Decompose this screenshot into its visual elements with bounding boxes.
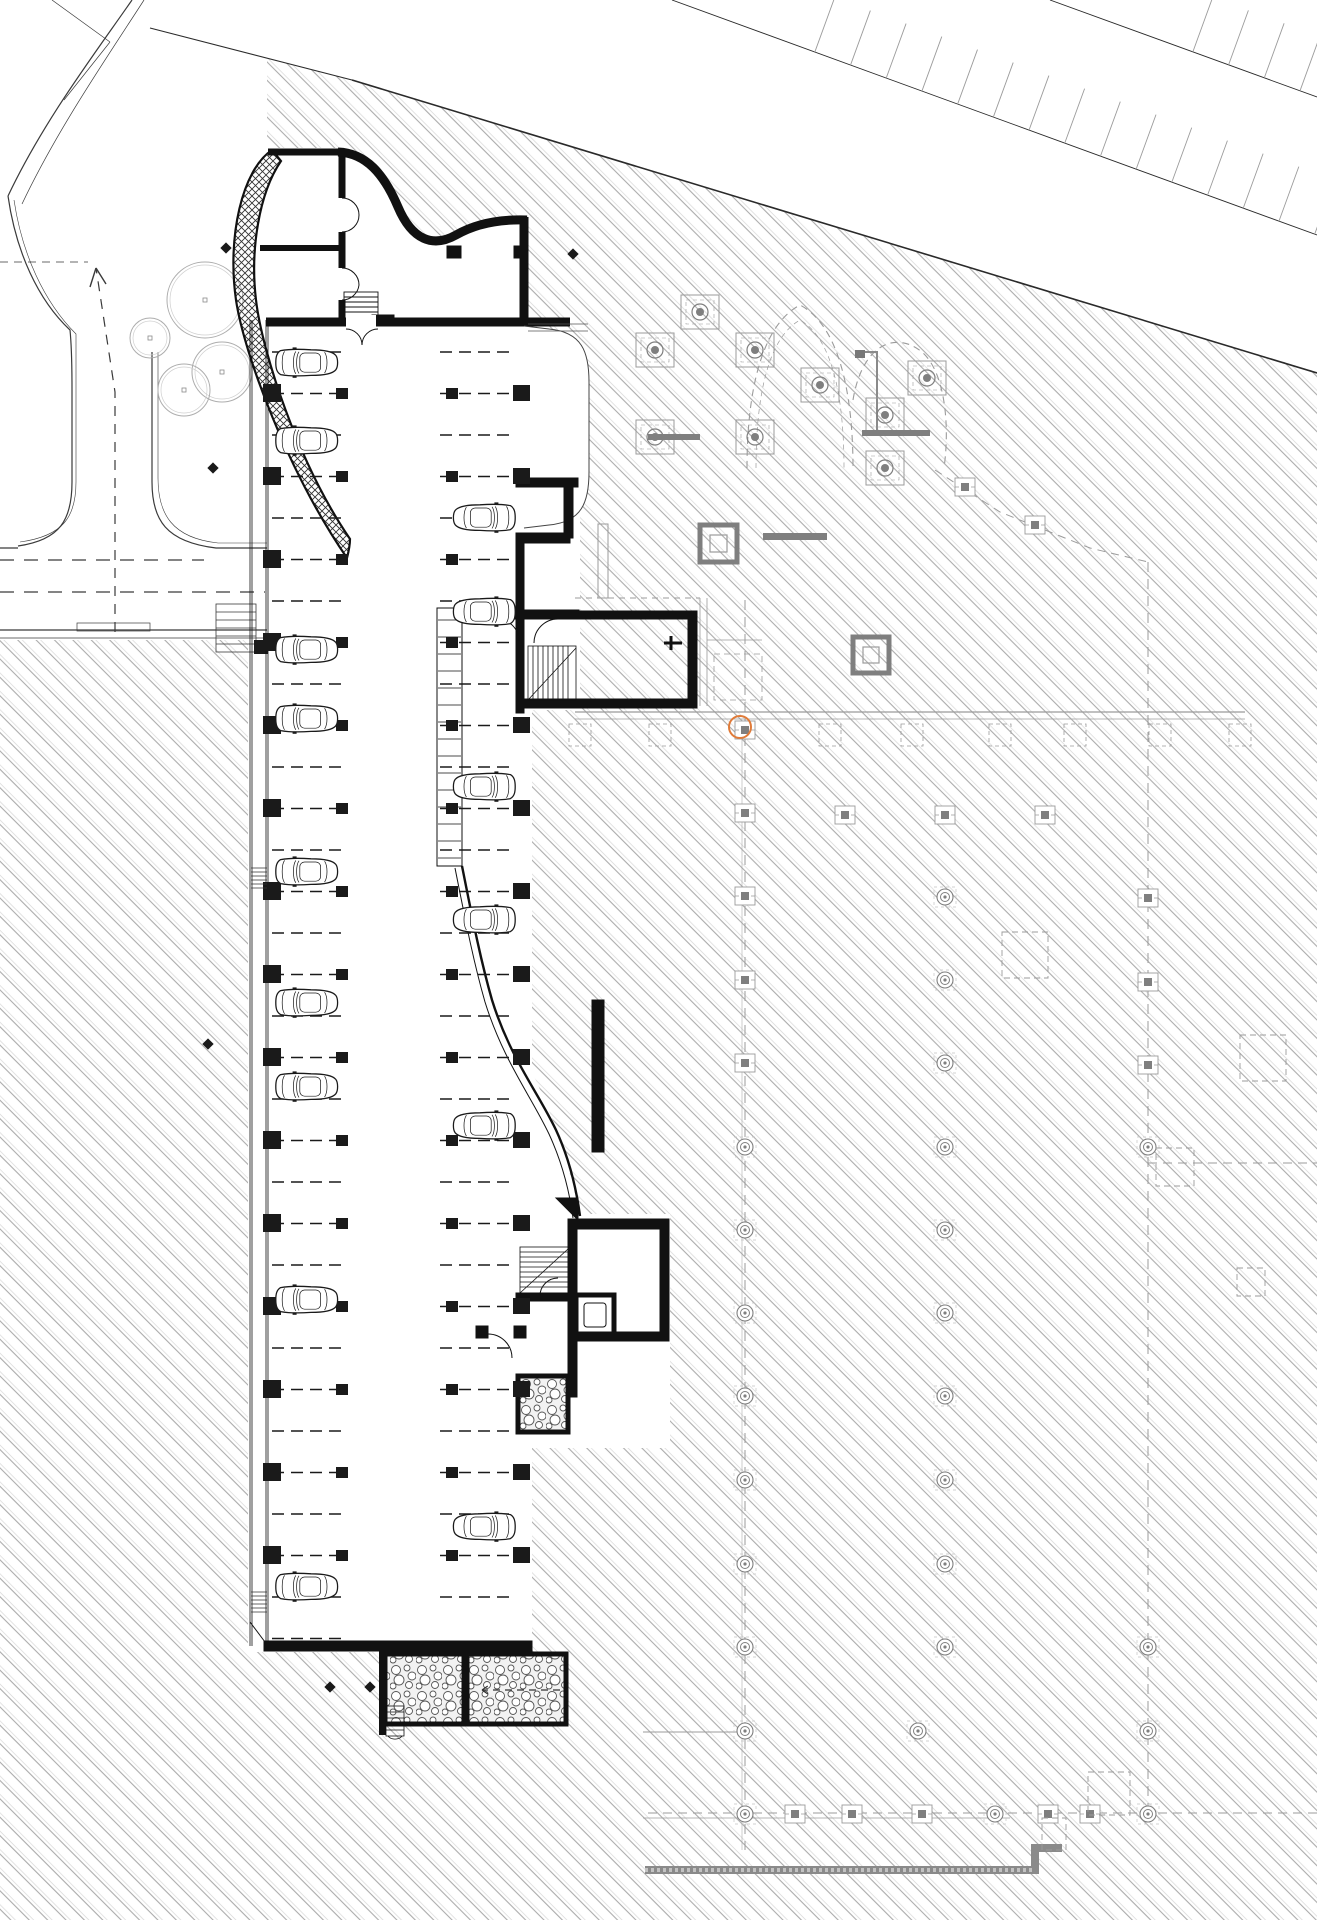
column xyxy=(513,1381,530,1397)
wall-pier xyxy=(514,246,526,258)
column-small xyxy=(446,471,458,482)
pile-icon xyxy=(943,1562,946,1565)
column-small xyxy=(446,637,458,648)
column xyxy=(513,1215,530,1231)
pile-icon xyxy=(993,1812,996,1815)
column-small xyxy=(336,554,348,565)
car-icon xyxy=(453,904,515,934)
column-small xyxy=(336,886,348,897)
car-icon xyxy=(453,502,515,532)
pile-icon xyxy=(651,346,659,354)
door-pier xyxy=(514,1326,526,1338)
column-small xyxy=(446,1384,458,1395)
pile-icon xyxy=(943,1311,946,1314)
car-icon xyxy=(276,703,338,733)
column xyxy=(513,1049,530,1065)
car-icon xyxy=(276,1284,338,1314)
area-street-plaza xyxy=(0,0,267,640)
pile-icon xyxy=(943,1061,946,1064)
column-small xyxy=(336,388,348,399)
pile-icon xyxy=(751,433,759,441)
ghost-beam xyxy=(648,434,700,440)
column-glyph xyxy=(1041,811,1049,819)
pile-icon xyxy=(751,346,759,354)
column xyxy=(263,1048,281,1066)
column xyxy=(263,965,281,983)
pile-icon xyxy=(943,1394,946,1397)
column-small xyxy=(446,1052,458,1063)
column xyxy=(513,1132,530,1148)
pile-icon xyxy=(1146,1729,1149,1732)
pile-icon xyxy=(943,1478,946,1481)
column xyxy=(513,966,530,982)
pile-icon xyxy=(916,1729,919,1732)
pile-icon xyxy=(1146,1812,1149,1815)
stone-pits xyxy=(379,1651,566,1739)
column-small xyxy=(446,388,458,399)
column-small xyxy=(446,969,458,980)
column-small xyxy=(336,1052,348,1063)
car-icon xyxy=(276,347,338,377)
column-small xyxy=(446,1467,458,1478)
column-glyph xyxy=(791,1810,799,1818)
column-glyph xyxy=(841,811,849,819)
car-icon xyxy=(276,856,338,886)
car-icon xyxy=(276,634,338,664)
pile-icon xyxy=(743,1228,746,1231)
retaining-bar xyxy=(592,1000,604,1152)
column xyxy=(513,800,530,816)
column xyxy=(263,467,281,485)
pile-icon xyxy=(743,1311,746,1314)
column xyxy=(513,883,530,899)
column-glyph xyxy=(1031,521,1039,529)
pile-icon xyxy=(743,1145,746,1148)
car-icon xyxy=(453,1110,515,1140)
pile-icon xyxy=(743,1478,746,1481)
pile-icon xyxy=(881,464,889,472)
door-gap xyxy=(346,315,376,329)
column-small xyxy=(336,1135,348,1146)
pile-icon xyxy=(923,374,931,382)
column xyxy=(513,1547,530,1563)
floor-plan-canvas xyxy=(0,0,1317,1920)
column-glyph xyxy=(741,726,749,734)
door-pier xyxy=(476,1326,488,1338)
column-small xyxy=(336,1218,348,1229)
pile-icon xyxy=(743,1394,746,1397)
pile-icon xyxy=(943,1645,946,1648)
column-glyph xyxy=(1144,894,1152,902)
pile-icon xyxy=(881,411,889,419)
column-glyph xyxy=(741,809,749,817)
pile-icon xyxy=(743,1729,746,1732)
column-small xyxy=(336,471,348,482)
column xyxy=(513,1464,530,1480)
column-small xyxy=(336,1550,348,1561)
column-small xyxy=(446,886,458,897)
column xyxy=(263,882,281,900)
column-glyph xyxy=(1044,1810,1052,1818)
column-small xyxy=(446,1218,458,1229)
car-icon xyxy=(453,596,515,626)
pile-icon xyxy=(1146,1145,1149,1148)
garage-bottom-wall xyxy=(264,1641,532,1651)
wall-pier xyxy=(447,246,461,258)
column-glyph xyxy=(1086,1810,1094,1818)
column xyxy=(513,1298,530,1314)
pile-icon xyxy=(816,381,824,389)
pile-icon xyxy=(943,1228,946,1231)
car-icon xyxy=(453,1511,515,1541)
floor-plan-page xyxy=(0,0,1317,1920)
pile-icon xyxy=(943,1145,946,1148)
car-icon xyxy=(276,987,338,1017)
column-glyph xyxy=(1144,1061,1152,1069)
pile-icon xyxy=(1146,1645,1149,1648)
column-small xyxy=(336,803,348,814)
column xyxy=(513,468,530,484)
car-icon xyxy=(453,771,515,801)
column xyxy=(263,1380,281,1398)
ghost-beam xyxy=(763,533,827,540)
car-icon xyxy=(276,1571,338,1601)
column-small xyxy=(336,1384,348,1395)
column xyxy=(263,384,281,402)
column-small xyxy=(446,1301,458,1312)
column-small xyxy=(336,969,348,980)
column-small xyxy=(446,1550,458,1561)
column-glyph xyxy=(848,1810,856,1818)
pile-icon xyxy=(943,978,946,981)
pile-icon xyxy=(743,1812,746,1815)
column xyxy=(513,385,530,401)
column xyxy=(263,1463,281,1481)
column-glyph xyxy=(741,976,749,984)
pile-icon xyxy=(743,1562,746,1565)
column xyxy=(263,1546,281,1564)
column-glyph xyxy=(918,1810,926,1818)
column xyxy=(263,799,281,817)
column-small xyxy=(446,720,458,731)
column-small xyxy=(446,1135,458,1146)
column-glyph xyxy=(961,483,969,491)
column-small xyxy=(446,554,458,565)
car-icon xyxy=(276,1071,338,1101)
column xyxy=(263,1214,281,1232)
column-glyph xyxy=(941,811,949,819)
pile-icon xyxy=(743,1645,746,1648)
column-glyph xyxy=(741,892,749,900)
column-small xyxy=(446,803,458,814)
ghost-pier xyxy=(855,350,865,358)
column-glyph xyxy=(741,1059,749,1067)
column-glyph xyxy=(1144,978,1152,986)
pile-icon xyxy=(696,308,704,316)
ghost-beam xyxy=(862,430,930,436)
column xyxy=(263,550,281,568)
column xyxy=(263,1131,281,1149)
column-small xyxy=(336,1467,348,1478)
pile-icon xyxy=(943,895,946,898)
column xyxy=(513,717,530,733)
car-icon xyxy=(276,425,338,455)
